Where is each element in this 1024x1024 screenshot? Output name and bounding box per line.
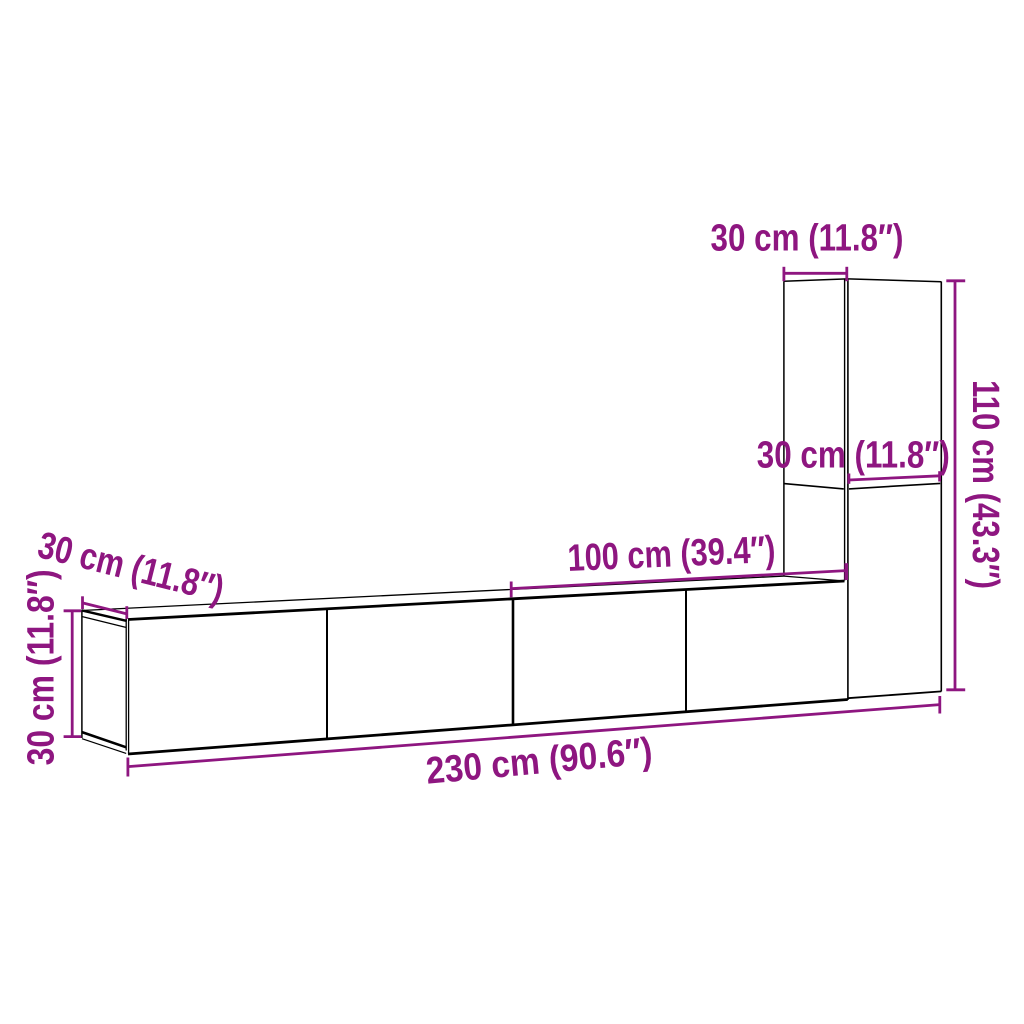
svg-text:30 cm (11.8″): 30 cm (11.8″) <box>757 435 950 477</box>
svg-text:110 cm (43.3″): 110 cm (43.3″) <box>964 380 1006 589</box>
svg-text:30 cm (11.8″): 30 cm (11.8″) <box>21 569 63 765</box>
svg-text:30 cm (11.8″): 30 cm (11.8″) <box>711 218 904 260</box>
